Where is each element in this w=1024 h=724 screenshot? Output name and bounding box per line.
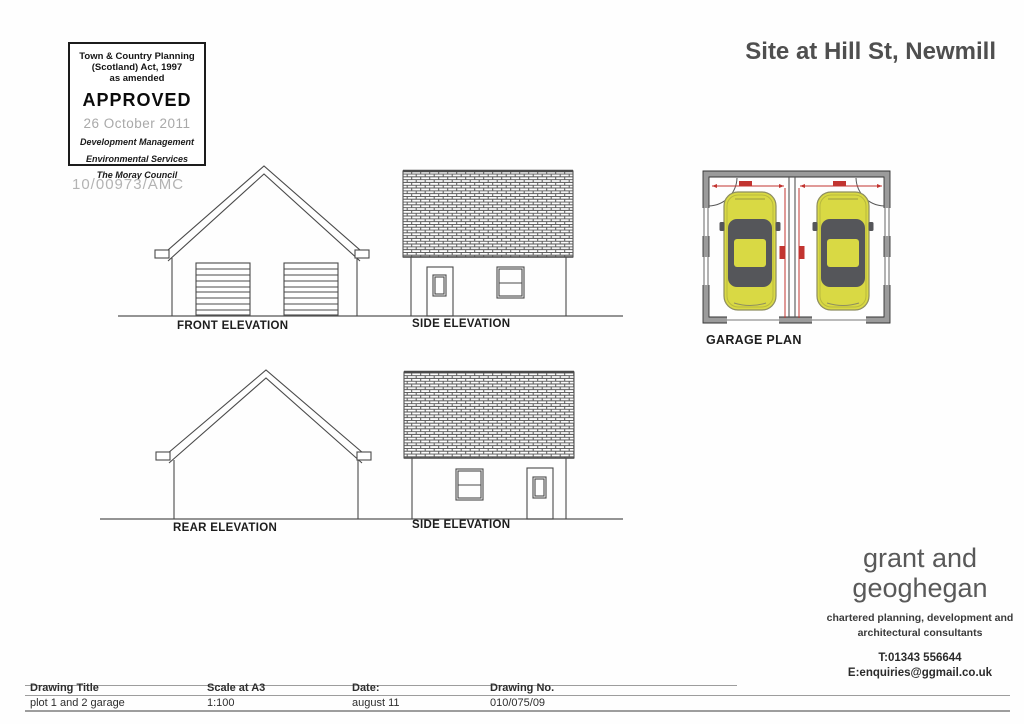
firm-tagline: architectural consultants <box>795 626 1024 641</box>
tb-header-drawing-no: Drawing No. <box>490 682 554 694</box>
title-block-line-middle <box>25 695 1010 696</box>
garage-plan-drawing <box>702 171 892 325</box>
side-elevation-bottom-drawing <box>404 372 574 519</box>
firm-name: grant and <box>795 543 1024 573</box>
act-text: (Scotland) Act, 1997 <box>70 62 204 73</box>
tb-value-date: august 11 <box>352 697 400 709</box>
rear-elevation-drawing <box>156 370 371 519</box>
firm-block: grant and geoghegan chartered planning, … <box>795 543 1024 681</box>
approved-status: APPROVED <box>70 90 204 111</box>
site-title: Site at Hill St, Newmill <box>740 38 996 66</box>
firm-tagline: chartered planning, development and <box>795 611 1024 626</box>
tb-header-drawing-title: Drawing Title <box>30 682 99 694</box>
tb-value-drawing-no: 010/075/09 <box>490 697 545 709</box>
tb-value-drawing-title: plot 1 and 2 garage <box>30 697 125 709</box>
department-text: Environmental Services <box>70 154 204 165</box>
department-text: Development Management <box>70 137 204 148</box>
approval-stamp: Town & Country Planning (Scotland) Act, … <box>68 42 206 166</box>
side-elevation-top-label: SIDE ELEVATION <box>412 318 510 330</box>
front-elevation-label: FRONT ELEVATION <box>177 320 288 332</box>
title-block-line-top <box>25 685 737 686</box>
tb-header-scale: Scale at A3 <box>207 682 265 694</box>
approval-date: 26 October 2011 <box>70 116 204 131</box>
planning-reference: 10/00973/AMC <box>72 176 184 193</box>
car-left-bay <box>720 192 781 310</box>
act-text: as amended <box>70 73 204 84</box>
tb-value-scale: 1:100 <box>207 697 235 709</box>
rear-elevation-label: REAR ELEVATION <box>173 522 277 534</box>
act-text: Town & Country Planning <box>70 51 204 62</box>
side-elevation-top-drawing <box>403 171 573 316</box>
title-block-line-bottom <box>25 710 1010 712</box>
tb-header-date: Date: <box>352 682 380 694</box>
car-right-bay <box>813 192 874 310</box>
drawing-sheet: Town & Country Planning (Scotland) Act, … <box>0 0 1024 724</box>
front-elevation-drawing <box>155 166 369 316</box>
firm-name: geoghegan <box>795 573 1024 603</box>
firm-email: E:enquiries@ggmail.co.uk <box>795 666 1024 681</box>
side-elevation-bottom-label: SIDE ELEVATION <box>412 519 510 531</box>
firm-phone: T:01343 556644 <box>795 651 1024 666</box>
garage-plan-label: GARAGE PLAN <box>706 333 802 347</box>
